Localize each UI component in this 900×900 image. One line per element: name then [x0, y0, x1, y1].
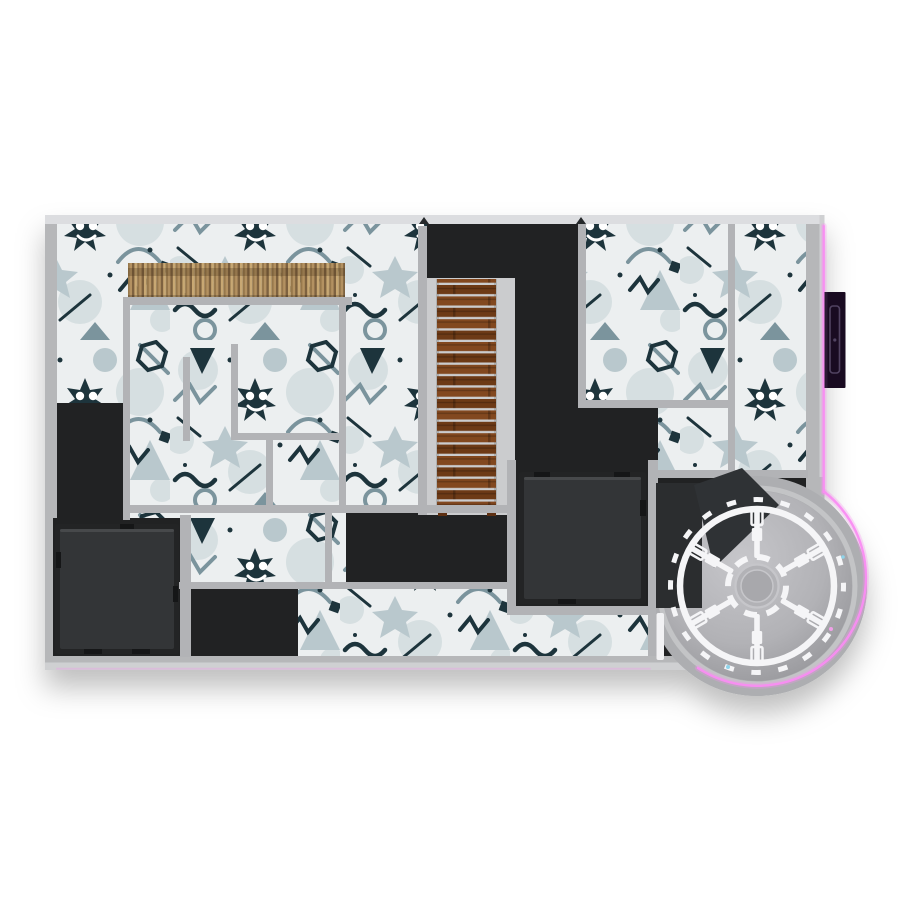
- carpet-center-room: [346, 513, 509, 583]
- stair-planks: [437, 279, 496, 508]
- wheel-hub-disc: [741, 570, 773, 602]
- map-canvas[interactable]: Top-down rendered floor plan of a doodle…: [0, 0, 900, 900]
- panel-handle: [833, 338, 836, 341]
- wall-box-west: [231, 344, 238, 440]
- wall-stub: [183, 357, 190, 441]
- bamboo-fence[interactable]: [128, 263, 345, 299]
- circular-room-door[interactable]: [657, 613, 665, 660]
- top-wall-edge: [45, 215, 825, 224]
- exterior-door-panel[interactable]: [825, 292, 846, 388]
- wall-h582: [178, 582, 513, 589]
- staircase[interactable]: [436, 279, 497, 516]
- wall-v325: [325, 505, 332, 588]
- platform-tab: [132, 649, 150, 654]
- wall-fence-south: [123, 297, 352, 305]
- platform-tab: [120, 524, 134, 529]
- carpet-stair-east: [515, 224, 580, 478]
- panel-edge: [825, 292, 828, 388]
- platform-tab: [640, 500, 646, 516]
- wall-v509: [507, 460, 516, 615]
- platform-tab: [558, 599, 576, 604]
- platform-highlight: [524, 477, 641, 480]
- rim-speck: [829, 627, 833, 631]
- rim-speck: [726, 665, 730, 669]
- platform-top: [60, 529, 174, 649]
- wall-left-inner: [123, 297, 130, 520]
- platform-tab: [614, 472, 630, 477]
- wall-tr-h400: [578, 400, 735, 408]
- wall-h606: [507, 606, 658, 615]
- wall-mid-vert: [339, 297, 346, 513]
- wall-v267: [266, 437, 273, 509]
- wall-tr-west: [578, 224, 586, 408]
- wall-stairs-west: [418, 226, 427, 515]
- platform-tab: [56, 552, 61, 568]
- platform-highlight: [60, 529, 174, 532]
- carpet-left-strip: [57, 403, 123, 522]
- platform-tab: [84, 649, 102, 654]
- platform-top: [524, 477, 641, 599]
- wall-h505: [123, 505, 510, 513]
- platform-center[interactable]: [519, 472, 646, 604]
- wall-box-south: [231, 433, 340, 440]
- carpet-bottom-corridor: [183, 588, 298, 656]
- platform-southwest[interactable]: [55, 524, 179, 654]
- platform-tab: [534, 472, 550, 477]
- platform-tab: [173, 586, 178, 602]
- wall-tr-v727: [728, 224, 735, 474]
- rim-speck: [841, 555, 845, 559]
- fence-slats: [128, 263, 345, 297]
- building: [45, 215, 867, 696]
